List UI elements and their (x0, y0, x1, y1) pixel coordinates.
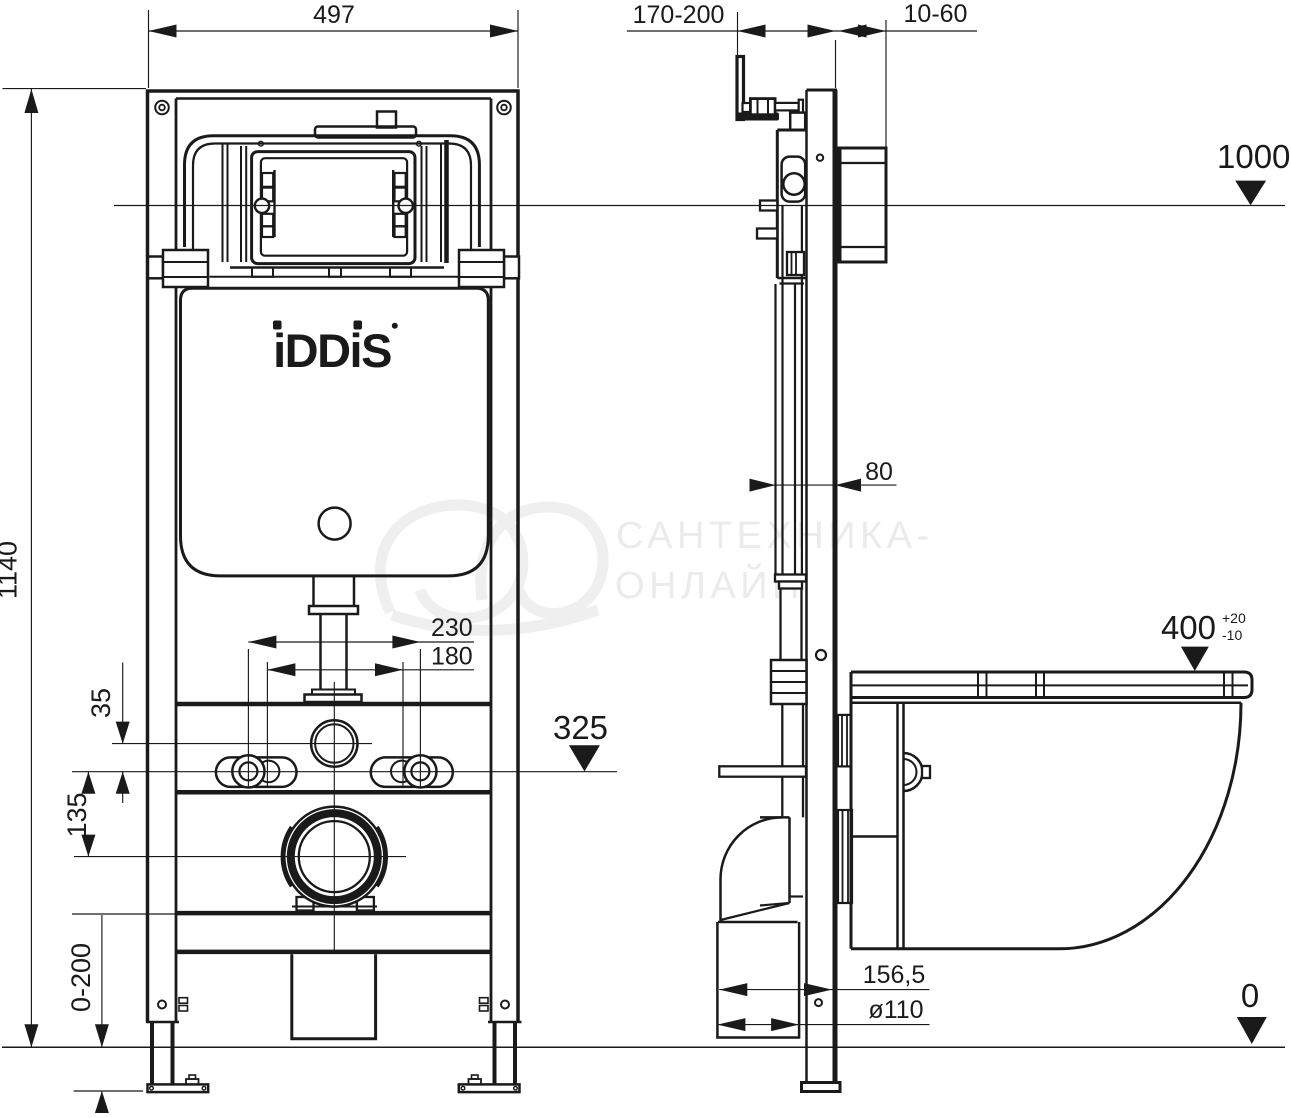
svg-text:iDDiS: iDDiS (273, 324, 391, 377)
svg-text:ø110: ø110 (868, 996, 923, 1024)
svg-text:497: 497 (313, 1, 355, 29)
svg-text:325: 325 (553, 709, 608, 746)
svg-text:0: 0 (1241, 977, 1259, 1014)
svg-text:170-200: 170-200 (633, 1, 725, 29)
svg-text:180: 180 (431, 643, 473, 671)
svg-text:400: 400 (1161, 609, 1216, 646)
svg-text:0-200: 0-200 (66, 943, 96, 1012)
svg-text:1140: 1140 (0, 541, 23, 599)
svg-text:10-60: 10-60 (904, 0, 968, 28)
svg-text:135: 135 (62, 792, 92, 837)
svg-text:80: 80 (865, 458, 893, 486)
svg-text:156,5: 156,5 (863, 961, 926, 989)
svg-text:1000: 1000 (1217, 138, 1290, 175)
svg-text:-10: -10 (1222, 627, 1242, 643)
svg-text:35: 35 (86, 688, 116, 718)
svg-text:+20: +20 (1222, 610, 1246, 626)
svg-text:230: 230 (431, 614, 473, 642)
